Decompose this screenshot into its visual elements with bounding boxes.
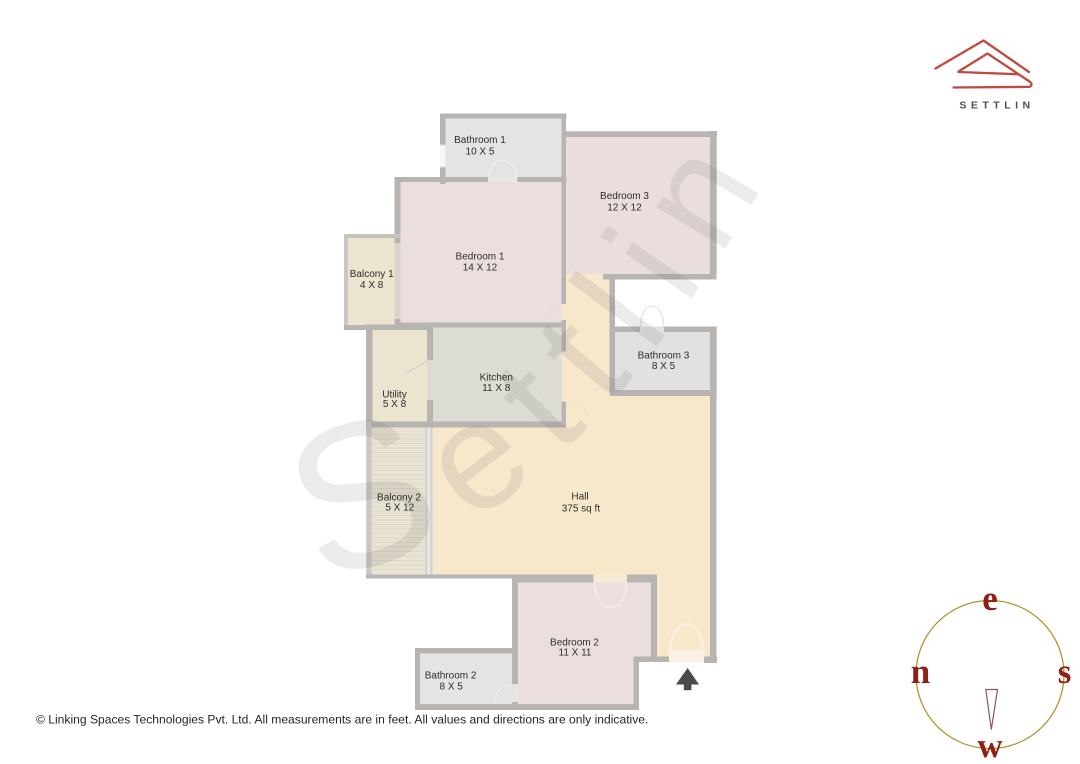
svg-text:8 X 5: 8 X 5 <box>652 361 676 372</box>
svg-text:12 X 12: 12 X 12 <box>607 203 642 214</box>
svg-text:5 X 8: 5 X 8 <box>383 399 407 410</box>
svg-text:10 X 5: 10 X 5 <box>466 146 495 157</box>
svg-text:Bathroom 3: Bathroom 3 <box>638 351 690 362</box>
svg-text:Kitchen: Kitchen <box>480 373 513 384</box>
svg-text:14 X 12: 14 X 12 <box>463 263 498 274</box>
svg-text:s: s <box>1058 652 1072 691</box>
svg-text:11 X 11: 11 X 11 <box>559 647 592 658</box>
svg-text:Bathroom 2: Bathroom 2 <box>425 671 477 682</box>
svg-text:375 sq ft: 375 sq ft <box>562 504 601 515</box>
svg-text:Hall: Hall <box>571 492 588 503</box>
svg-text:11 X 8: 11 X 8 <box>482 383 511 394</box>
svg-text:w: w <box>977 726 1003 764</box>
svg-text:5 X 12: 5 X 12 <box>385 503 414 514</box>
svg-text:© Linking Spaces Technologies: © Linking Spaces Technologies Pvt. Ltd. … <box>36 713 648 727</box>
svg-text:Bedroom 1: Bedroom 1 <box>456 252 505 263</box>
svg-text:4 X 8: 4 X 8 <box>360 280 384 291</box>
svg-text:Balcony 1: Balcony 1 <box>350 269 394 280</box>
svg-text:e: e <box>982 579 998 618</box>
svg-text:Bathroom 1: Bathroom 1 <box>454 135 506 146</box>
svg-text:8 X 5: 8 X 5 <box>440 681 464 692</box>
svg-text:SETTLIN: SETTLIN <box>959 100 1034 112</box>
svg-text:n: n <box>911 652 930 691</box>
svg-text:Bedroom 3: Bedroom 3 <box>600 191 649 202</box>
